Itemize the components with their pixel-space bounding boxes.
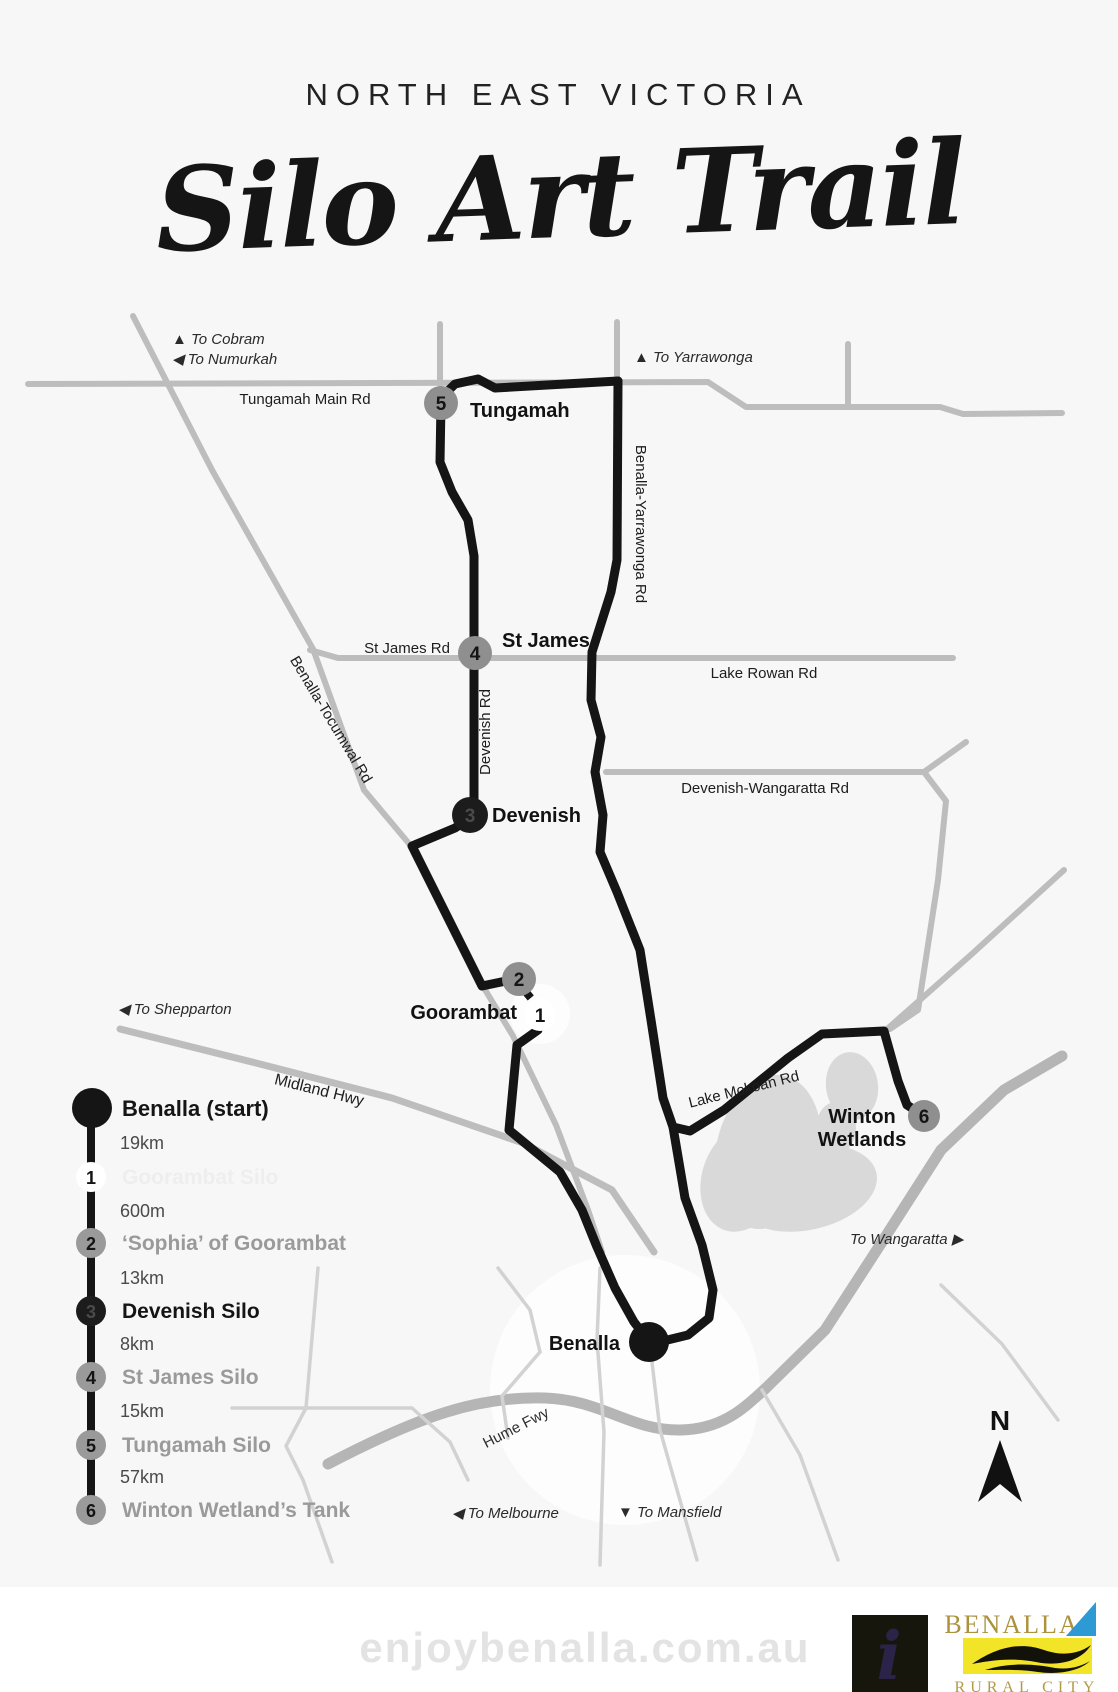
legend-item-3-label: Devenish Silo <box>122 1300 260 1323</box>
trail-map: NORTH EAST VICTORIA Silo Art Trail <box>0 0 1118 1692</box>
direction-to-shepparton: ◀ To Shepparton <box>118 1001 232 1018</box>
legend-item-5-label: Tungamah Silo <box>122 1434 271 1457</box>
label-benalla-tocumwal-rd: Benalla-Tocumwal Rd <box>286 653 375 786</box>
direction-to-cobram: ▲ To Cobram <box>172 331 265 348</box>
trail-devenish-goorambat <box>412 818 506 986</box>
svg-text:6: 6 <box>86 1501 96 1521</box>
direction-to-yarrawonga: ▲ To Yarrawonga <box>634 349 753 366</box>
direction-to-numurkah: ◀ To Numurkah <box>172 351 277 368</box>
legend-distance-3: 8km <box>120 1334 154 1354</box>
map-marker-4: 4 <box>458 636 492 670</box>
map-marker-1: 1 <box>524 999 556 1031</box>
benalla-rural-city-logo: BENALLA RURAL CITY <box>944 1602 1099 1692</box>
svg-text:4: 4 <box>86 1368 96 1388</box>
map-marker-3: 3 <box>452 797 488 833</box>
legend-item-4-label: St James Silo <box>122 1366 259 1389</box>
compass-n-label: N <box>990 1405 1010 1436</box>
svg-text:5: 5 <box>86 1436 96 1456</box>
town-goorambat: Goorambat <box>410 1002 517 1024</box>
label-lake-rowan-rd: Lake Rowan Rd <box>711 665 818 682</box>
svg-text:3: 3 <box>465 806 476 827</box>
label-devenish-rd: Devenish Rd <box>477 689 494 775</box>
north-arrow-icon <box>978 1440 1022 1502</box>
svg-text:2: 2 <box>514 970 525 991</box>
svg-text:2: 2 <box>86 1234 96 1254</box>
road-winton-link <box>890 772 946 1029</box>
map-marker-2: 2 <box>502 962 536 996</box>
direction-to-mansfield: ▼ To Mansfield <box>618 1504 722 1521</box>
town-st-james: St James <box>502 630 590 652</box>
legend-distance-0: 19km <box>120 1133 164 1153</box>
direction-to-wangaratta: To Wangaratta ▶ <box>850 1231 965 1248</box>
info-i-icon: i <box>876 1617 901 1692</box>
label-benalla-yarrawonga-rd: Benalla-Yarrawonga Rd <box>632 445 649 603</box>
road-devenish-wangaratta-rd <box>606 742 966 772</box>
silo-art-trail-poster: NORTH EAST VICTORIA Silo Art Trail <box>0 0 1118 1692</box>
svg-text:1: 1 <box>535 1006 546 1027</box>
svg-text:5: 5 <box>436 394 447 415</box>
benalla-start-dot <box>629 1322 669 1362</box>
svg-text:6: 6 <box>919 1107 930 1128</box>
legend-start-label: Benalla (start) <box>122 1096 269 1121</box>
legend-item-6-label: Winton Wetland’s Tank <box>122 1499 350 1522</box>
map-marker-5: 5 <box>424 386 458 420</box>
legend-start-dot <box>72 1088 112 1128</box>
svg-text:1: 1 <box>86 1168 96 1188</box>
region-title: NORTH EAST VICTORIA <box>305 77 810 112</box>
trail-tungamah-east <box>441 379 618 398</box>
svg-text:4: 4 <box>470 644 481 665</box>
town-tungamah: Tungamah <box>470 400 570 422</box>
logo-rural-city-text: RURAL CITY <box>955 1679 1100 1692</box>
legend-item-2-label: ‘Sophia’ of Goorambat <box>122 1232 346 1255</box>
svg-text:3: 3 <box>86 1302 96 1322</box>
town-winton-line1: Winton <box>828 1106 896 1128</box>
trail-devenish-rd <box>440 403 474 815</box>
label-st-james-rd: St James Rd <box>364 640 450 657</box>
road-midland-hwy <box>120 1029 654 1252</box>
legend-distance-5: 57km <box>120 1467 164 1487</box>
direction-to-melbourne: ◀ To Melbourne <box>452 1505 559 1522</box>
legend-distance-4: 15km <box>120 1401 164 1421</box>
label-devenish-wangaratta-rd: Devenish-Wangaratta Rd <box>681 780 849 797</box>
watermark: enjoybenalla.com.au <box>359 1624 810 1671</box>
trail-benalla-yarrawonga-rd <box>591 381 713 1343</box>
benalla-town-halo <box>490 1255 760 1525</box>
north-compass: N <box>978 1405 1022 1502</box>
logo-benalla-text: BENALLA <box>944 1610 1079 1639</box>
town-winton-line2: Wetlands <box>818 1129 907 1151</box>
poster-title: Silo Art Trail <box>153 115 966 279</box>
label-tungamah-main-rd: Tungamah Main Rd <box>239 391 370 408</box>
legend-item-1-label: Goorambat Silo <box>122 1166 278 1189</box>
legend-distance-2: 13km <box>120 1268 164 1288</box>
legend: Benalla (start) 19km 1 Goorambat Silo 60… <box>72 1088 350 1525</box>
town-benalla: Benalla <box>549 1333 621 1355</box>
legend-distance-1: 600m <box>120 1201 165 1221</box>
road-winton-northeast <box>886 870 1064 1030</box>
map-marker-6: 6 <box>908 1100 940 1132</box>
visitor-info-logo: i <box>852 1615 928 1692</box>
town-devenish: Devenish <box>492 805 581 827</box>
